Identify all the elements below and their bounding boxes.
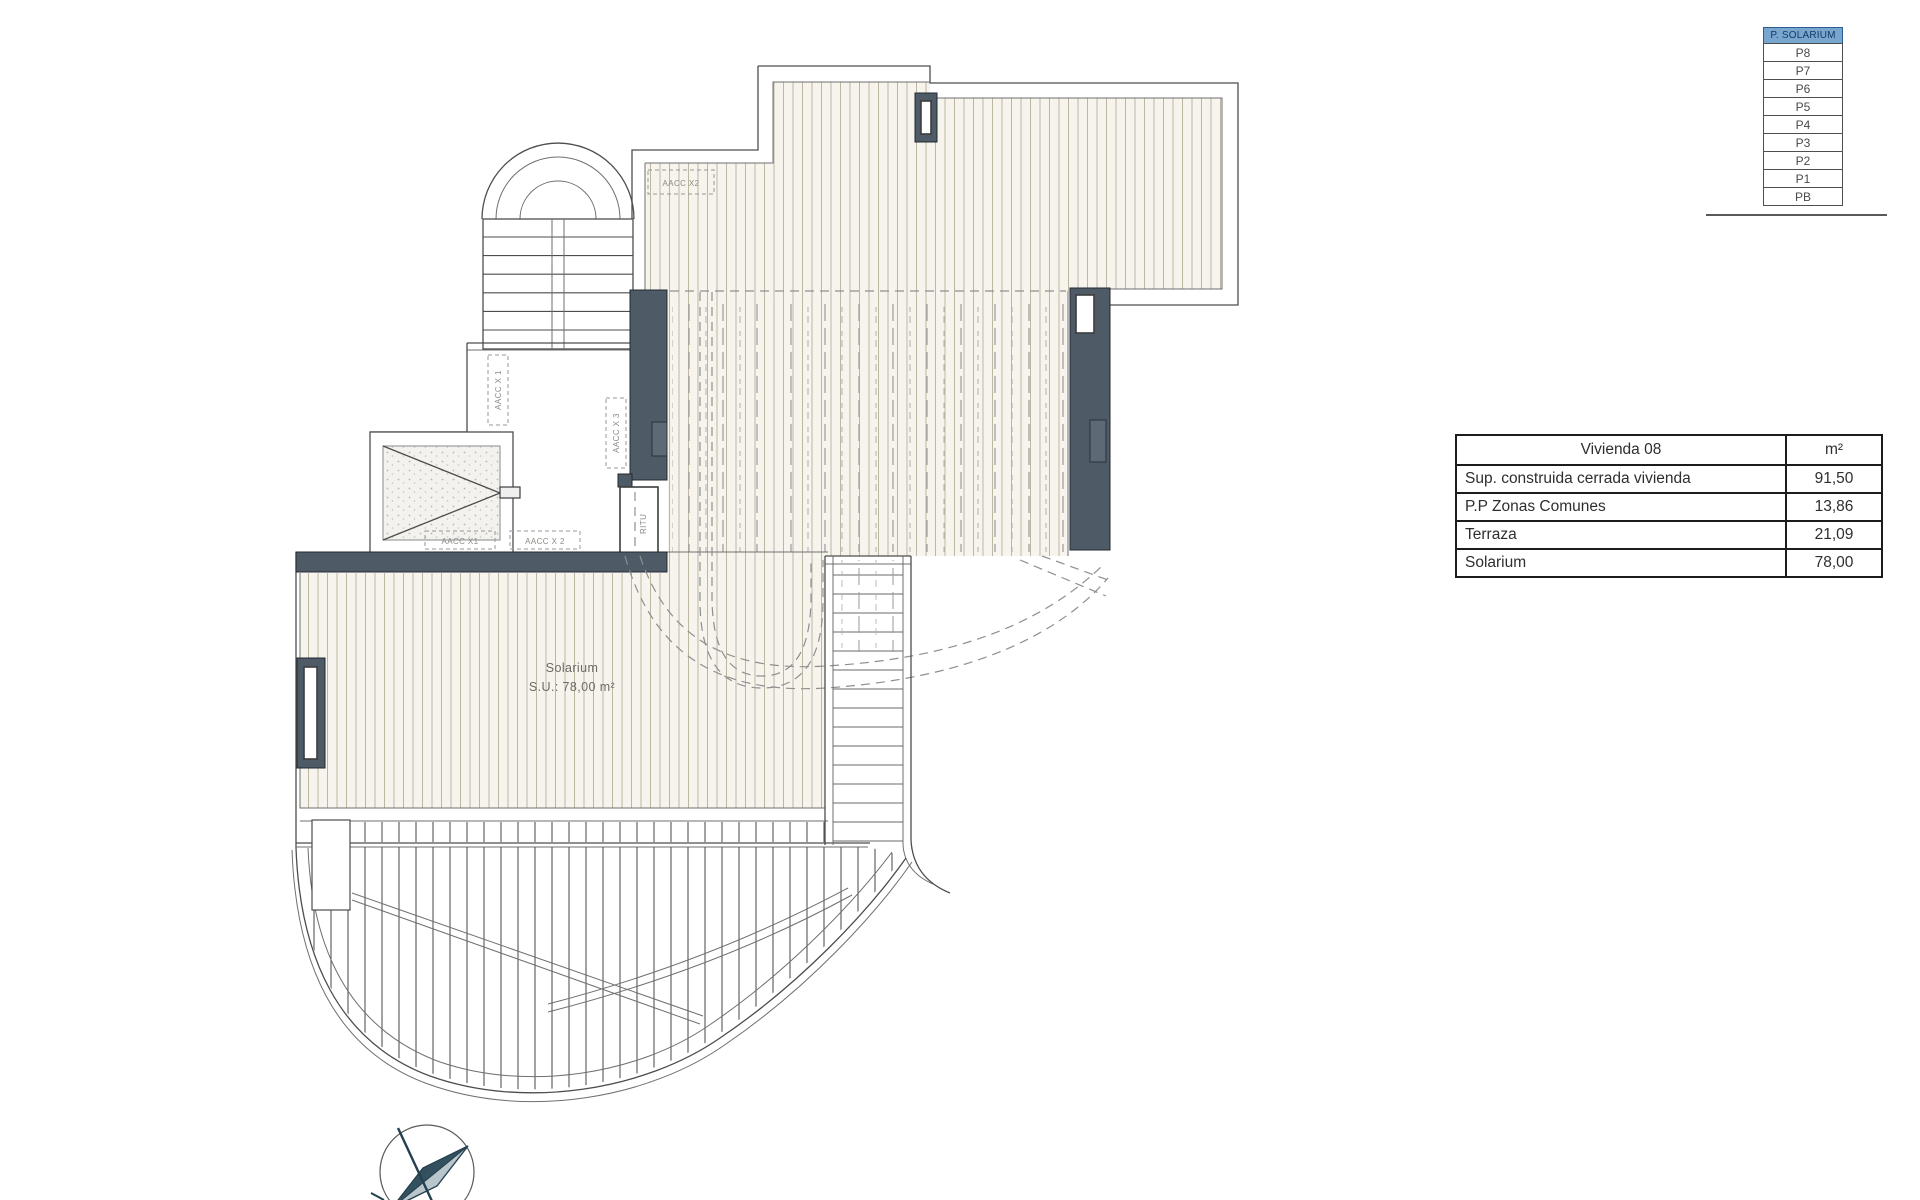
ritu-label: RITU: [639, 514, 648, 534]
east-window: [1076, 295, 1094, 333]
row-value: 78,00: [1786, 549, 1882, 577]
level-row: P2: [1763, 151, 1843, 170]
shaft-handle: [500, 487, 520, 498]
floor-plan-drawing: RITU AACC X2 AACC X1 AACC X 2 AACC X 1 A…: [0, 0, 1920, 1200]
row-value: 21,09: [1786, 521, 1882, 549]
level-row: P3: [1763, 133, 1843, 152]
solarium-area: S.U.: 78,00 m²: [529, 680, 615, 694]
table-row: Vivienda 08 m²: [1456, 435, 1882, 465]
aacc-x1-label: AACC X1: [441, 537, 478, 546]
west-window: [304, 667, 317, 759]
table-row: P.P Zonas Comunes 13,86: [1456, 493, 1882, 521]
skylight-shaft: [370, 432, 520, 553]
balcony-railing: [298, 847, 903, 1089]
floorplan-sheet: RITU AACC X2 AACC X1 AACC X 2 AACC X 1 A…: [0, 0, 1920, 1200]
compass-needle-dark: [392, 1146, 468, 1200]
level-row: P4: [1763, 115, 1843, 134]
table-row: Terraza 21,09: [1456, 521, 1882, 549]
aacc-x2-label: AACC X 2: [525, 537, 565, 546]
upper-railing: [302, 822, 826, 842]
row-label: Solarium: [1456, 549, 1786, 577]
wall-stub: [618, 474, 632, 487]
chimney-opening: [921, 101, 931, 134]
level-row: P6: [1763, 79, 1843, 98]
row-value: 91,50: [1786, 465, 1882, 493]
lower-balcony: [292, 820, 912, 1102]
table-unit: m²: [1786, 435, 1882, 465]
table-row: Solarium 78,00: [1456, 549, 1882, 577]
table-title: Vivienda 08: [1456, 435, 1786, 465]
aacc-x2-top-label: AACC X2: [662, 179, 699, 188]
compass-tick: [371, 1193, 384, 1200]
aacc-x1-vertical-label: AACC X 1: [494, 370, 503, 410]
row-label: Sup. construida cerrada vivienda: [1456, 465, 1786, 493]
balcony-planter: [312, 820, 350, 910]
row-value: 13,86: [1786, 493, 1882, 521]
core-door: [652, 422, 667, 456]
level-row: P5: [1763, 97, 1843, 116]
level-row: P8: [1763, 43, 1843, 62]
aacc-x3-vertical-label: AACC X 3: [612, 413, 621, 453]
table-row: Sup. construida cerrada vivienda 91,50: [1456, 465, 1882, 493]
level-row: PB: [1763, 187, 1843, 206]
solarium-parapet-wall: [296, 552, 667, 572]
level-row-active: P. SOLARIUM: [1763, 27, 1843, 44]
row-label: Terraza: [1456, 521, 1786, 549]
hidden-structure-hatch: [672, 300, 1064, 552]
east-door: [1090, 420, 1106, 462]
solarium-name: Solarium: [546, 661, 599, 675]
row-label: P.P Zonas Comunes: [1456, 493, 1786, 521]
middle-terrace-deck: [668, 291, 1068, 573]
area-summary-table: Vivienda 08 m² Sup. construida cerrada v…: [1455, 434, 1883, 578]
level-row: P1: [1763, 169, 1843, 188]
level-indicator: P. SOLARIUM P8 P7 P6 P5 P4 P3 P2 P1 PB: [1763, 27, 1843, 206]
level-row: P7: [1763, 61, 1843, 80]
north-compass: [371, 1125, 474, 1200]
